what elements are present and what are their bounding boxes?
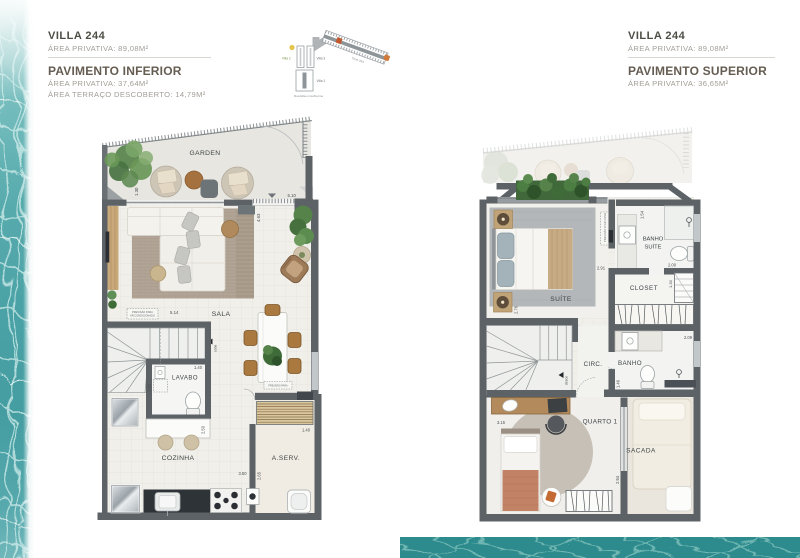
svg-text:CIRC.: CIRC. bbox=[584, 361, 603, 368]
svg-text:SUÍTE: SUÍTE bbox=[644, 244, 661, 251]
svg-text:desce: desce bbox=[565, 376, 569, 385]
svg-text:1.54: 1.54 bbox=[640, 210, 645, 219]
svg-text:COZINHA: COZINHA bbox=[162, 455, 195, 462]
svg-text:Villa 2: Villa 2 bbox=[282, 57, 291, 61]
svg-text:1.40: 1.40 bbox=[302, 428, 311, 433]
svg-text:5.14: 5.14 bbox=[170, 310, 179, 315]
svg-text:1.32: 1.32 bbox=[147, 383, 152, 392]
svg-text:5.10: 5.10 bbox=[288, 193, 297, 198]
svg-text:QUARTO 1: QUARTO 1 bbox=[583, 419, 618, 426]
svg-text:Villa 1: Villa 1 bbox=[317, 79, 326, 83]
svg-text:sobe: sobe bbox=[214, 345, 218, 352]
svg-text:1.40: 1.40 bbox=[194, 365, 203, 370]
svg-text:2.00: 2.00 bbox=[668, 263, 677, 268]
svg-text:SACADA: SACADA bbox=[626, 448, 656, 455]
svg-text:2.50: 2.50 bbox=[201, 425, 206, 434]
svg-text:PREVISÃO PARA: PREVISÃO PARA bbox=[268, 385, 288, 388]
svg-text:1.33: 1.33 bbox=[668, 279, 673, 288]
svg-text:2.94: 2.94 bbox=[615, 475, 620, 484]
svg-text:AR CONDICIONADO: AR CONDICIONADO bbox=[130, 314, 155, 318]
svg-text:2.76: 2.76 bbox=[514, 305, 519, 314]
svg-text:2.91: 2.91 bbox=[597, 266, 606, 271]
svg-text:4.63: 4.63 bbox=[256, 213, 261, 222]
svg-text:A.SERV.: A.SERV. bbox=[272, 455, 300, 462]
svg-text:Rua Eliseu Guilherme: Rua Eliseu Guilherme bbox=[294, 94, 324, 98]
svg-text:2.09: 2.09 bbox=[684, 335, 693, 340]
svg-text:2.65: 2.65 bbox=[257, 471, 262, 480]
svg-text:CLOSET: CLOSET bbox=[630, 285, 658, 292]
svg-text:LAVABO: LAVABO bbox=[172, 376, 198, 382]
svg-text:GARDEN: GARDEN bbox=[189, 150, 220, 157]
svg-text:3.50: 3.50 bbox=[239, 471, 248, 476]
svg-text:Torre 244: Torre 244 bbox=[351, 56, 365, 64]
svg-text:BANHO: BANHO bbox=[618, 360, 642, 367]
svg-text:Villa 3: Villa 3 bbox=[317, 57, 326, 61]
svg-text:1.46: 1.46 bbox=[616, 379, 621, 388]
svg-text:SUÍTE: SUÍTE bbox=[550, 294, 572, 303]
svg-text:BANHO: BANHO bbox=[643, 237, 664, 243]
svg-text:1.30: 1.30 bbox=[134, 187, 139, 196]
svg-text:3.15: 3.15 bbox=[497, 420, 506, 425]
svg-text:SALA: SALA bbox=[212, 311, 231, 318]
